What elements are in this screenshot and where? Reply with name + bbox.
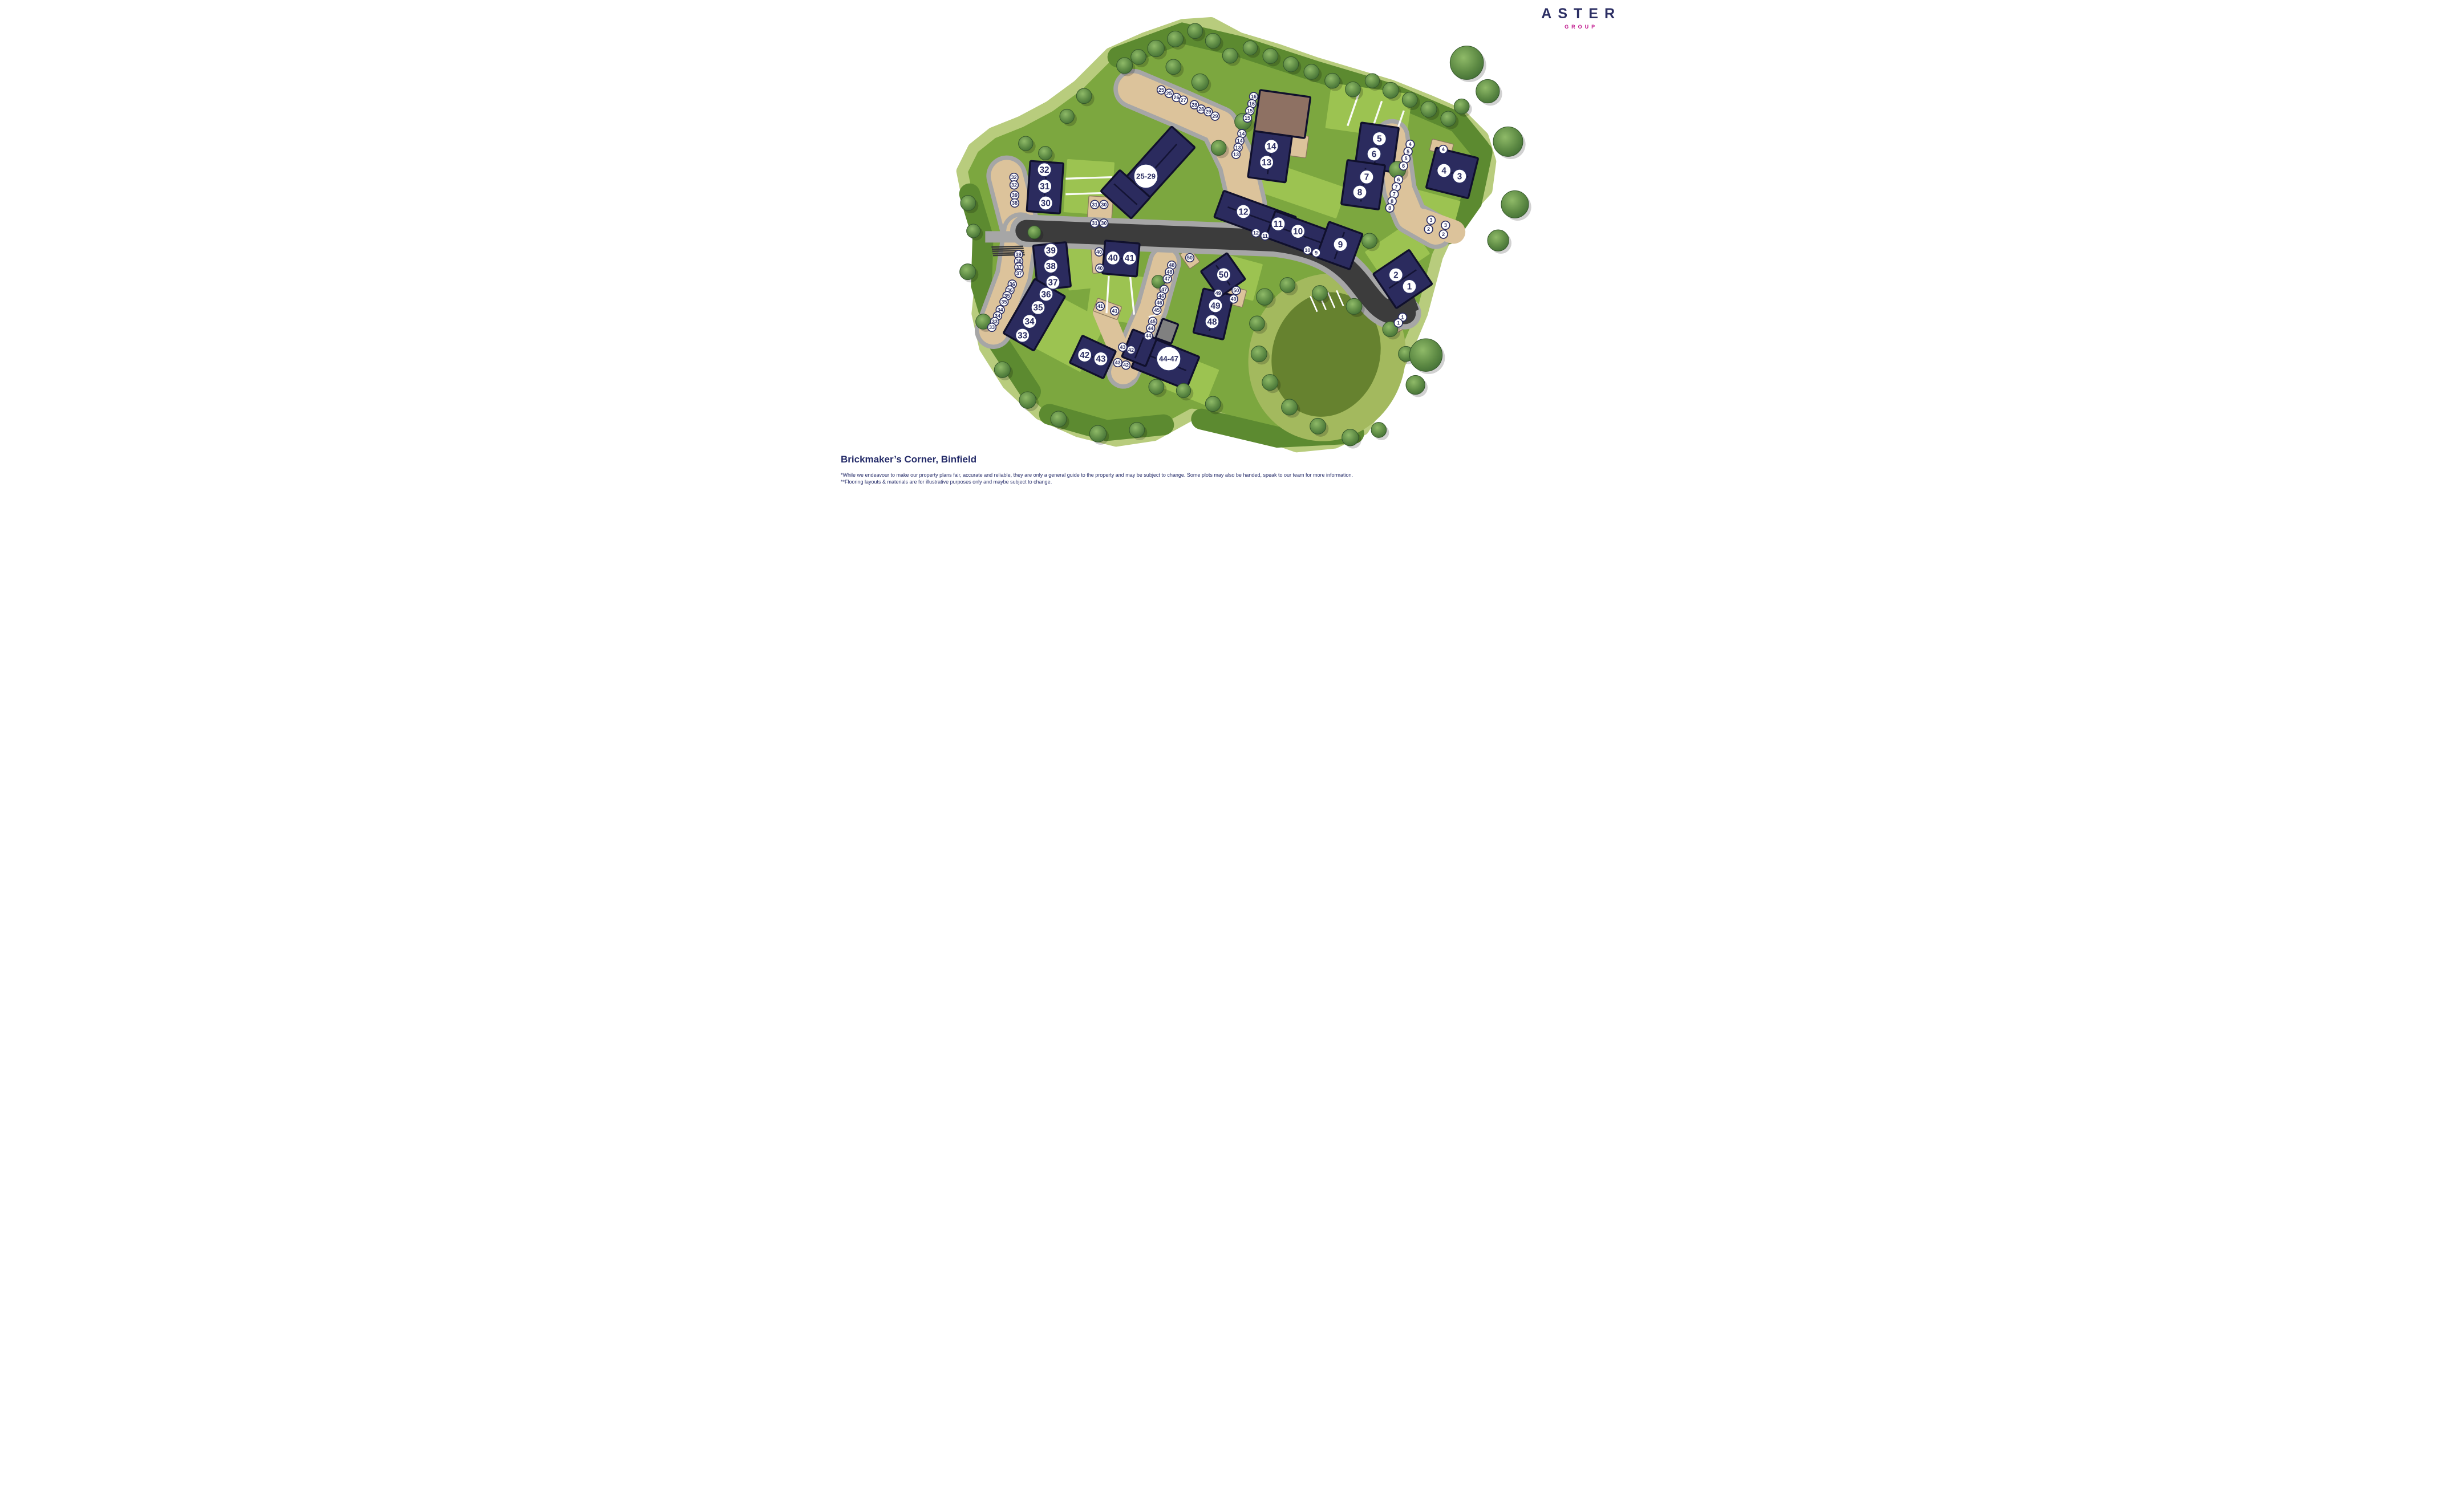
svg-text:42: 42: [1128, 347, 1134, 353]
svg-text:4: 4: [1441, 166, 1446, 176]
parking-space-35: 35: [1000, 298, 1008, 306]
disclaimer-line-2: **Flooring layouts & materials are for i…: [841, 479, 1353, 485]
parking-space-30: 30: [1100, 219, 1108, 228]
parking-space-31: 31: [1091, 200, 1099, 209]
parking-space-40: 40: [1096, 264, 1104, 273]
parking-space-10: 10: [1303, 246, 1312, 254]
svg-text:11: 11: [1262, 233, 1268, 239]
svg-text:43: 43: [1096, 355, 1105, 364]
svg-text:40: 40: [1097, 265, 1103, 271]
svg-text:32: 32: [1011, 182, 1017, 188]
svg-text:31: 31: [1040, 182, 1050, 192]
svg-text:5: 5: [1404, 156, 1407, 161]
svg-text:14: 14: [1239, 131, 1245, 136]
svg-text:5: 5: [1407, 149, 1409, 155]
brochure-page: ASTER GROUP 1616151514141313252526272828…: [821, 0, 1643, 497]
svg-text:4: 4: [1409, 141, 1412, 147]
svg-text:34: 34: [1024, 317, 1035, 327]
parking-space-4: 4: [1439, 145, 1448, 154]
tree: [1371, 423, 1389, 440]
plot-marker-12[interactable]: 12: [1237, 205, 1251, 219]
svg-text:10: 10: [1304, 247, 1310, 253]
parking-space-31: 31: [1091, 219, 1099, 228]
svg-text:30: 30: [1041, 198, 1051, 208]
plot-marker-34[interactable]: 34: [1023, 314, 1037, 328]
parking-space-2: 2: [1439, 230, 1448, 238]
svg-text:12: 12: [1253, 230, 1259, 236]
plot-marker-40[interactable]: 40: [1106, 251, 1120, 265]
parking-space-37: 37: [1015, 269, 1023, 278]
parking-space-42: 42: [1122, 361, 1130, 370]
svg-text:32: 32: [1039, 165, 1049, 175]
site-plan-canvas: 1616151514141313252526272828292944556677…: [821, 0, 1643, 497]
parking-space-15: 15: [1243, 114, 1252, 123]
svg-text:39: 39: [1046, 246, 1056, 255]
garage-block: [1254, 90, 1311, 138]
svg-text:44-47: 44-47: [1159, 355, 1178, 363]
svg-text:49: 49: [1215, 290, 1221, 296]
footer: Brickmaker’s Corner, Binfield *While we …: [841, 454, 1353, 486]
svg-text:14: 14: [1266, 142, 1276, 152]
plot-marker-7[interactable]: 7: [1360, 170, 1374, 184]
parking-space-50: 50: [1232, 286, 1241, 295]
svg-text:8: 8: [1391, 198, 1393, 204]
svg-text:30: 30: [1101, 202, 1107, 208]
parking-space-40: 40: [1095, 247, 1104, 256]
parking-space-11: 11: [1261, 232, 1270, 240]
disclaimer-line-1: *While we endeavour to make our property…: [841, 472, 1353, 478]
svg-text:35: 35: [1033, 303, 1043, 313]
parking-space-49: 49: [1214, 289, 1222, 298]
parking-space-47: 47: [1163, 275, 1172, 283]
developer-logo: ASTER GROUP: [1541, 6, 1621, 30]
svg-text:50: 50: [1187, 255, 1193, 261]
svg-text:50: 50: [1219, 270, 1229, 280]
svg-text:7: 7: [1393, 191, 1396, 197]
svg-text:41: 41: [1097, 303, 1103, 309]
svg-text:39: 39: [1012, 192, 1018, 198]
tree: [1501, 190, 1531, 221]
tree: [1476, 79, 1502, 105]
parking-space-42: 42: [1127, 346, 1136, 354]
parking-space-32: 32: [1010, 181, 1019, 189]
svg-text:45: 45: [1150, 319, 1156, 324]
logo-subtitle: GROUP: [1541, 24, 1621, 30]
svg-text:37: 37: [1048, 278, 1057, 287]
plot-marker-10[interactable]: 10: [1291, 224, 1305, 238]
svg-text:31: 31: [1092, 202, 1097, 208]
parking-space-44: 44: [1146, 324, 1155, 332]
svg-text:33: 33: [989, 324, 995, 330]
svg-text:16: 16: [1251, 94, 1257, 99]
svg-text:9: 9: [1315, 250, 1318, 255]
plot-marker-8[interactable]: 8: [1353, 185, 1367, 200]
svg-text:16: 16: [1249, 101, 1255, 107]
parking-space-9: 9: [1312, 249, 1320, 257]
parking-space-45: 45: [1153, 306, 1161, 315]
parking-space-3: 3: [1427, 216, 1436, 225]
svg-text:13: 13: [1262, 158, 1271, 168]
svg-text:33: 33: [1018, 331, 1027, 340]
parking-space-3: 3: [1441, 221, 1450, 230]
svg-text:35: 35: [1001, 299, 1007, 305]
parking-space-30: 30: [1100, 200, 1108, 209]
parking-space-38: 38: [1011, 199, 1019, 208]
svg-text:2: 2: [1427, 226, 1430, 232]
logo-wordmark: ASTER: [1541, 6, 1621, 22]
svg-text:28: 28: [1198, 106, 1204, 112]
svg-text:15: 15: [1247, 108, 1253, 113]
plot-marker-30[interactable]: 30: [1039, 196, 1053, 210]
plot-marker-43[interactable]: 43: [1094, 352, 1108, 366]
svg-text:25-29: 25-29: [1136, 172, 1156, 181]
parking-space-43: 43: [1118, 343, 1127, 351]
plot-marker-14[interactable]: 14: [1265, 139, 1279, 153]
svg-text:38: 38: [1046, 262, 1056, 271]
svg-text:6: 6: [1372, 149, 1377, 159]
svg-text:26: 26: [1174, 95, 1180, 100]
site-plan: 1616151514141313252526272828292944556677…: [821, 0, 1643, 497]
plot-marker-2[interactable]: 2: [1389, 268, 1403, 282]
svg-text:3: 3: [1457, 172, 1462, 181]
parking-space-8: 8: [1385, 204, 1394, 212]
svg-text:31: 31: [1092, 220, 1097, 226]
svg-text:43: 43: [1120, 344, 1125, 350]
plot-marker-50[interactable]: 50: [1217, 267, 1231, 282]
tree: [1493, 127, 1526, 159]
plot-marker-39[interactable]: 39: [1044, 243, 1058, 258]
svg-text:11: 11: [1274, 220, 1283, 229]
svg-text:42: 42: [1080, 351, 1089, 360]
parking-space-29: 29: [1211, 112, 1219, 120]
parking-space-12: 12: [1252, 229, 1261, 237]
plot-marker-32[interactable]: 32: [1038, 163, 1052, 177]
svg-text:3: 3: [1444, 222, 1447, 228]
svg-text:9: 9: [1338, 240, 1343, 250]
svg-text:29: 29: [1212, 113, 1218, 119]
svg-text:41: 41: [1112, 308, 1117, 314]
svg-text:12: 12: [1238, 207, 1248, 217]
parking-space-41: 41: [1111, 307, 1119, 315]
svg-text:8: 8: [1388, 205, 1391, 211]
plot-marker-3[interactable]: 3: [1453, 169, 1467, 184]
parking-space-6: 6: [1399, 162, 1408, 170]
plot-marker-1[interactable]: 1: [1403, 279, 1417, 294]
crossing-line: [992, 249, 1024, 249]
parking-space-13: 13: [1232, 150, 1241, 159]
svg-text:2: 2: [1393, 270, 1399, 280]
svg-text:47: 47: [1165, 276, 1170, 282]
svg-text:44: 44: [1145, 333, 1151, 339]
crossing-line: [991, 246, 1023, 247]
svg-text:41: 41: [1125, 254, 1135, 263]
tree: [1406, 375, 1428, 397]
svg-text:36: 36: [1041, 290, 1051, 299]
svg-text:46: 46: [1157, 300, 1162, 306]
plot-marker-42[interactable]: 42: [1077, 348, 1092, 362]
svg-text:49: 49: [1231, 296, 1237, 302]
svg-text:1: 1: [1407, 282, 1412, 292]
svg-text:1: 1: [1397, 320, 1400, 326]
tree: [1488, 230, 1511, 254]
svg-text:13: 13: [1235, 145, 1241, 151]
parking-space-49: 49: [1229, 295, 1238, 303]
parking-space-25: 25: [1157, 86, 1166, 94]
tree: [1409, 339, 1445, 374]
svg-text:25: 25: [1166, 91, 1172, 96]
svg-text:43: 43: [1115, 360, 1121, 366]
svg-text:1: 1: [1401, 314, 1404, 320]
svg-text:48: 48: [1207, 317, 1217, 327]
plot-marker-11[interactable]: 11: [1271, 217, 1286, 231]
parking-space-43: 43: [1113, 359, 1122, 367]
svg-text:7: 7: [1395, 184, 1397, 190]
plot-marker-41[interactable]: 41: [1122, 251, 1137, 265]
svg-text:2: 2: [1442, 232, 1445, 237]
svg-text:38: 38: [1012, 200, 1018, 206]
svg-text:27: 27: [1181, 98, 1186, 103]
page-title: Brickmaker’s Corner, Binfield: [841, 454, 1353, 465]
svg-text:3: 3: [1429, 217, 1432, 223]
plot-marker-49[interactable]: 49: [1209, 299, 1223, 313]
svg-text:49: 49: [1210, 301, 1220, 311]
plot-marker-4[interactable]: 4: [1437, 164, 1451, 178]
svg-text:48: 48: [1166, 269, 1172, 275]
parking-space-27: 27: [1179, 96, 1188, 104]
svg-text:13: 13: [1233, 152, 1239, 157]
plot-marker-31[interactable]: 31: [1038, 179, 1052, 193]
plot-marker-44-47[interactable]: 44-47: [1157, 347, 1181, 371]
svg-text:8: 8: [1357, 188, 1363, 197]
parking-space-1: 1: [1394, 319, 1403, 327]
svg-text:48: 48: [1169, 262, 1174, 268]
svg-text:32: 32: [1011, 174, 1017, 180]
plot-marker-38[interactable]: 38: [1044, 259, 1058, 273]
plot-marker-13[interactable]: 13: [1259, 155, 1274, 169]
parking-space-2: 2: [1424, 225, 1433, 234]
svg-text:44: 44: [1148, 326, 1153, 331]
plot-marker-5[interactable]: 5: [1372, 132, 1387, 146]
svg-text:40: 40: [1108, 254, 1118, 263]
svg-text:25: 25: [1158, 87, 1164, 93]
plot-marker-48[interactable]: 48: [1205, 315, 1219, 329]
svg-text:6: 6: [1397, 177, 1400, 182]
svg-text:30: 30: [1101, 220, 1107, 226]
parking-space-33: 33: [988, 323, 996, 332]
plot-marker-25-29[interactable]: 25-29: [1134, 164, 1158, 189]
plot-marker-6[interactable]: 6: [1367, 147, 1381, 161]
svg-text:40: 40: [1096, 249, 1102, 255]
svg-text:37: 37: [1016, 270, 1022, 276]
tree: [1450, 46, 1486, 82]
svg-text:5: 5: [1377, 135, 1382, 144]
parking-space-50: 50: [1186, 254, 1194, 262]
plot-marker-9[interactable]: 9: [1334, 237, 1348, 251]
parking-space-39: 39: [1011, 191, 1019, 200]
parking-space-32: 32: [1010, 173, 1018, 182]
svg-text:4: 4: [1442, 147, 1445, 152]
parking-space-41: 41: [1096, 302, 1105, 311]
parking-space-44: 44: [1144, 332, 1153, 340]
plot-marker-35[interactable]: 35: [1031, 301, 1045, 315]
svg-text:28: 28: [1192, 102, 1197, 108]
svg-text:15: 15: [1245, 115, 1250, 121]
svg-text:50: 50: [1233, 287, 1239, 293]
svg-text:42: 42: [1123, 362, 1129, 368]
svg-text:29: 29: [1205, 109, 1211, 115]
plot-marker-33[interactable]: 33: [1015, 328, 1030, 343]
svg-text:10: 10: [1293, 227, 1303, 237]
svg-text:45: 45: [1154, 307, 1160, 313]
svg-text:7: 7: [1364, 173, 1369, 182]
plot-marker-37[interactable]: 37: [1046, 275, 1060, 290]
parking-space-25: 25: [1165, 89, 1173, 98]
svg-text:6: 6: [1402, 163, 1405, 169]
